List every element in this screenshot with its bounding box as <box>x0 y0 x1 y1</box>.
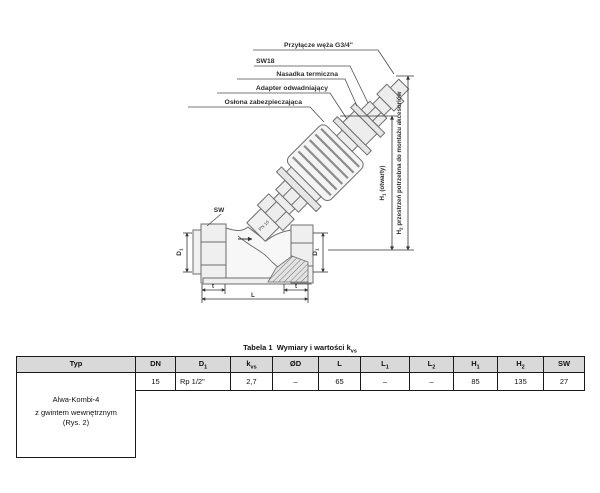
cell-l1: – <box>361 373 410 391</box>
col-header-typ: Typ <box>17 357 136 373</box>
table-header-row: Typ DN D1 kvs ØD L L1 L2 H1 H2 SW <box>17 357 585 373</box>
cell-typ: Alwa-Kombi-4 z gwintem wewnętrznym (Rys.… <box>17 373 136 458</box>
cell-od: – <box>273 373 319 391</box>
col-header-l: L <box>319 357 361 373</box>
cell-dn: 15 <box>136 373 176 391</box>
dim-t-right: t <box>295 284 297 290</box>
left-hex-nut <box>201 224 226 283</box>
col-header-kvs: kvs <box>231 357 273 373</box>
dimensions-table: Typ DN D1 kvs ØD L L1 L2 H1 H2 SW Alwa-K… <box>16 356 585 458</box>
callout-protective-cap: Osłona zabezpieczająca <box>225 99 303 106</box>
dim-h1: H1 (otwarty) <box>379 166 387 201</box>
cell-sw: 27 <box>544 373 585 391</box>
cell-kvs: 2,7 <box>231 373 273 391</box>
col-header-l2: L2 <box>410 357 454 373</box>
col-header-d1: D1 <box>176 357 231 373</box>
col-header-h2: H2 <box>498 357 544 373</box>
col-header-od: ØD <box>273 357 319 373</box>
typ-figure-ref: (Rys. 2) <box>17 418 135 428</box>
valve-technical-drawing: PN 16 Przyłącze węża G3/4" SW18 Nasadka … <box>0 0 600 335</box>
dim-t-left: t <box>212 284 214 290</box>
table-title: Tabela 1 Wymiary i wartości kvs <box>16 343 584 355</box>
col-header-dn: DN <box>136 357 176 373</box>
dim-d1-left: D1 <box>176 248 185 256</box>
dim-l: L <box>251 293 255 299</box>
table-data-row: Alwa-Kombi-4 z gwintem wewnętrznym (Rys.… <box>17 373 585 391</box>
callout-thermal-cap: Nasadka termiczna <box>276 71 338 78</box>
dim-h2: H2 przestrzeń potrzebna do montażu akces… <box>396 91 404 234</box>
cell-h2: 135 <box>498 373 544 391</box>
typ-name: Alwa-Kombi-4 <box>17 373 135 404</box>
callout-drain-adapter: Adapter odwadniający <box>256 85 328 92</box>
cell-l: 65 <box>319 373 361 391</box>
callout-sw18: SW18 <box>256 58 275 65</box>
valve-body <box>193 224 313 284</box>
cell-d1: Rp 1/2" <box>176 373 231 391</box>
callout-labels: Przyłącze węża G3/4" SW18 Nasadka termic… <box>225 42 353 106</box>
col-header-l1: L1 <box>361 357 410 373</box>
callout-hose-connection: Przyłącze węża G3/4" <box>284 42 353 49</box>
cell-l2: – <box>410 373 454 391</box>
typ-desc: z gwintem wewnętrznym <box>17 408 135 418</box>
col-header-sw: SW <box>544 357 585 373</box>
col-header-h1: H1 <box>454 357 498 373</box>
sw-label: SW <box>214 207 225 214</box>
datasheet-page: PN 16 Przyłącze węża G3/4" SW18 Nasadka … <box>0 0 600 493</box>
left-pipe-end <box>193 230 201 274</box>
cell-h1: 85 <box>454 373 498 391</box>
